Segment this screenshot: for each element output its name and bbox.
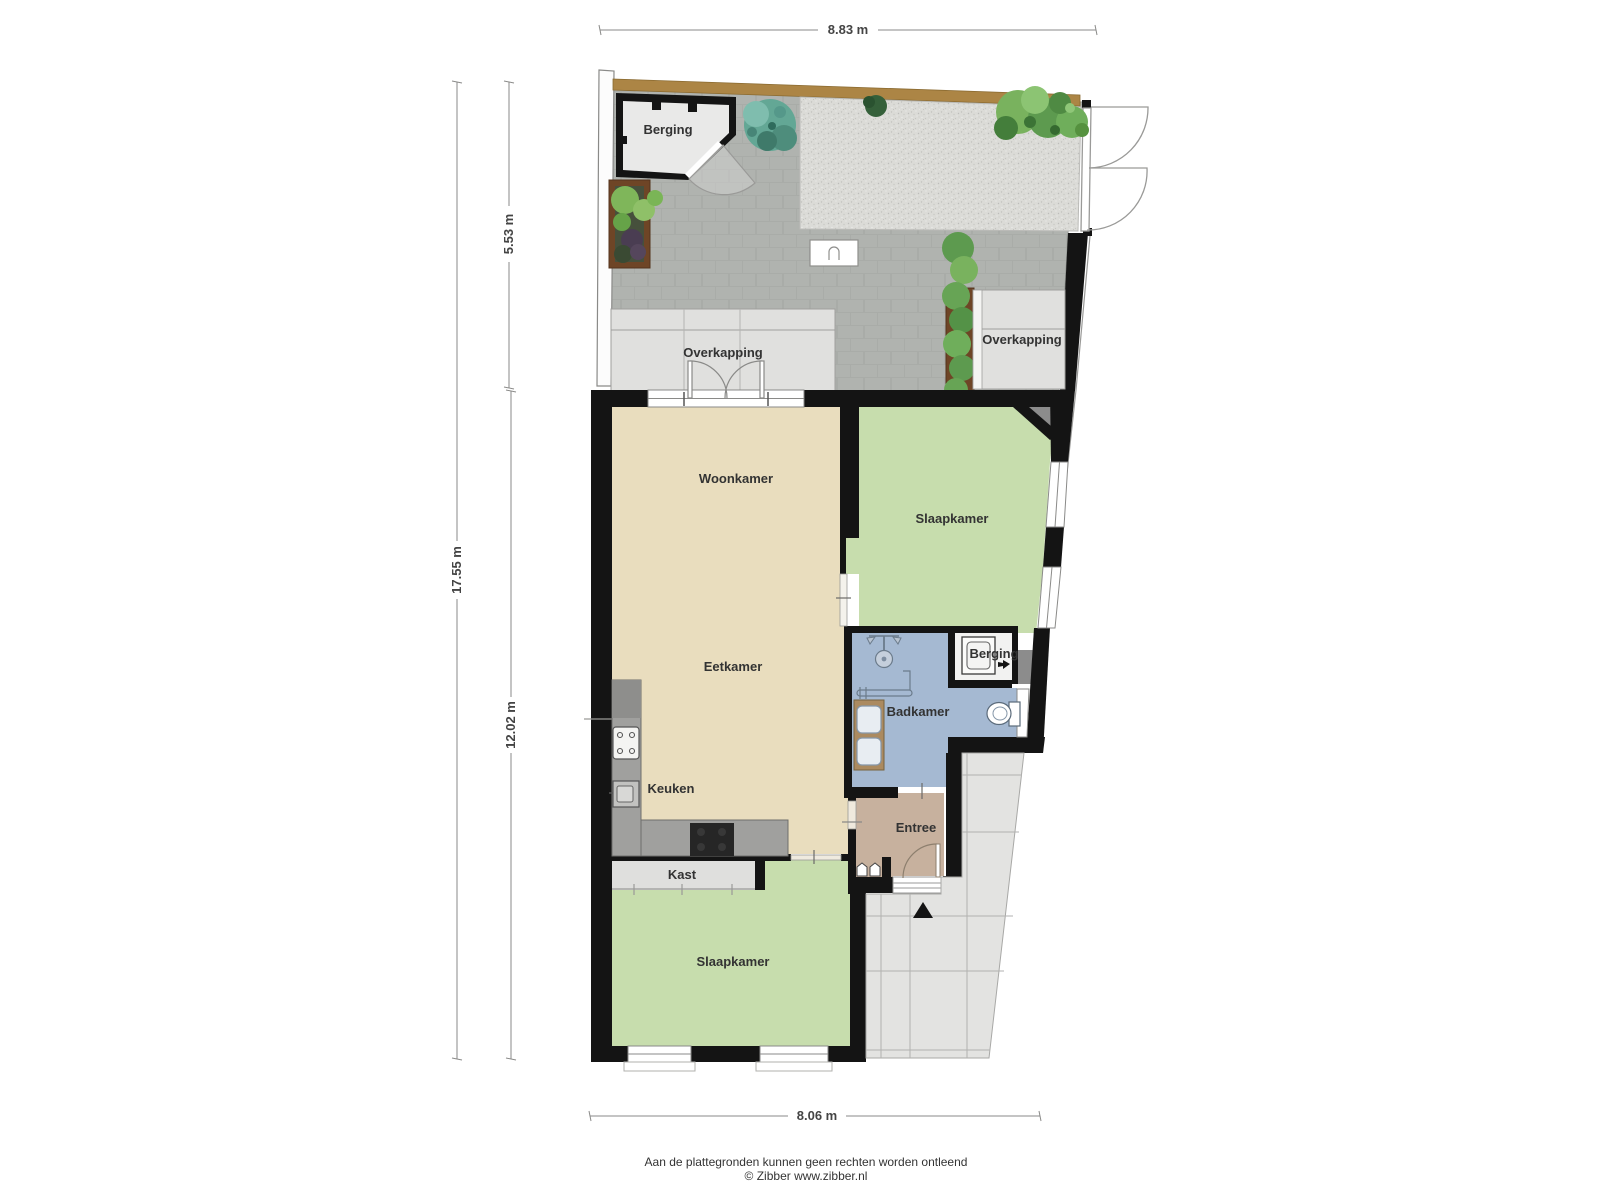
svg-text:Eetkamer: Eetkamer: [704, 659, 763, 674]
svg-text:12.02 m: 12.02 m: [503, 701, 518, 749]
svg-text:Slaapkamer: Slaapkamer: [916, 511, 989, 526]
svg-text:8.83 m: 8.83 m: [828, 22, 868, 37]
svg-text:Keuken: Keuken: [648, 781, 695, 796]
svg-text:© Zibber www.zibber.nl: © Zibber www.zibber.nl: [745, 1169, 868, 1183]
svg-text:Overkapping: Overkapping: [683, 345, 763, 360]
svg-text:Overkapping: Overkapping: [982, 332, 1062, 347]
svg-text:Berging: Berging: [969, 646, 1018, 661]
svg-text:8.06 m: 8.06 m: [797, 1108, 837, 1123]
svg-text:Kast: Kast: [668, 867, 697, 882]
svg-text:Berging: Berging: [643, 122, 692, 137]
svg-text:Aan de plattegronden kunnen ge: Aan de plattegronden kunnen geen rechten…: [645, 1155, 968, 1169]
svg-text:5.53 m: 5.53 m: [501, 214, 516, 254]
svg-text:17.55 m: 17.55 m: [449, 546, 464, 594]
svg-text:Entree: Entree: [896, 820, 936, 835]
svg-text:Badkamer: Badkamer: [887, 704, 950, 719]
svg-text:Slaapkamer: Slaapkamer: [697, 954, 770, 969]
svg-text:Woonkamer: Woonkamer: [699, 471, 773, 486]
